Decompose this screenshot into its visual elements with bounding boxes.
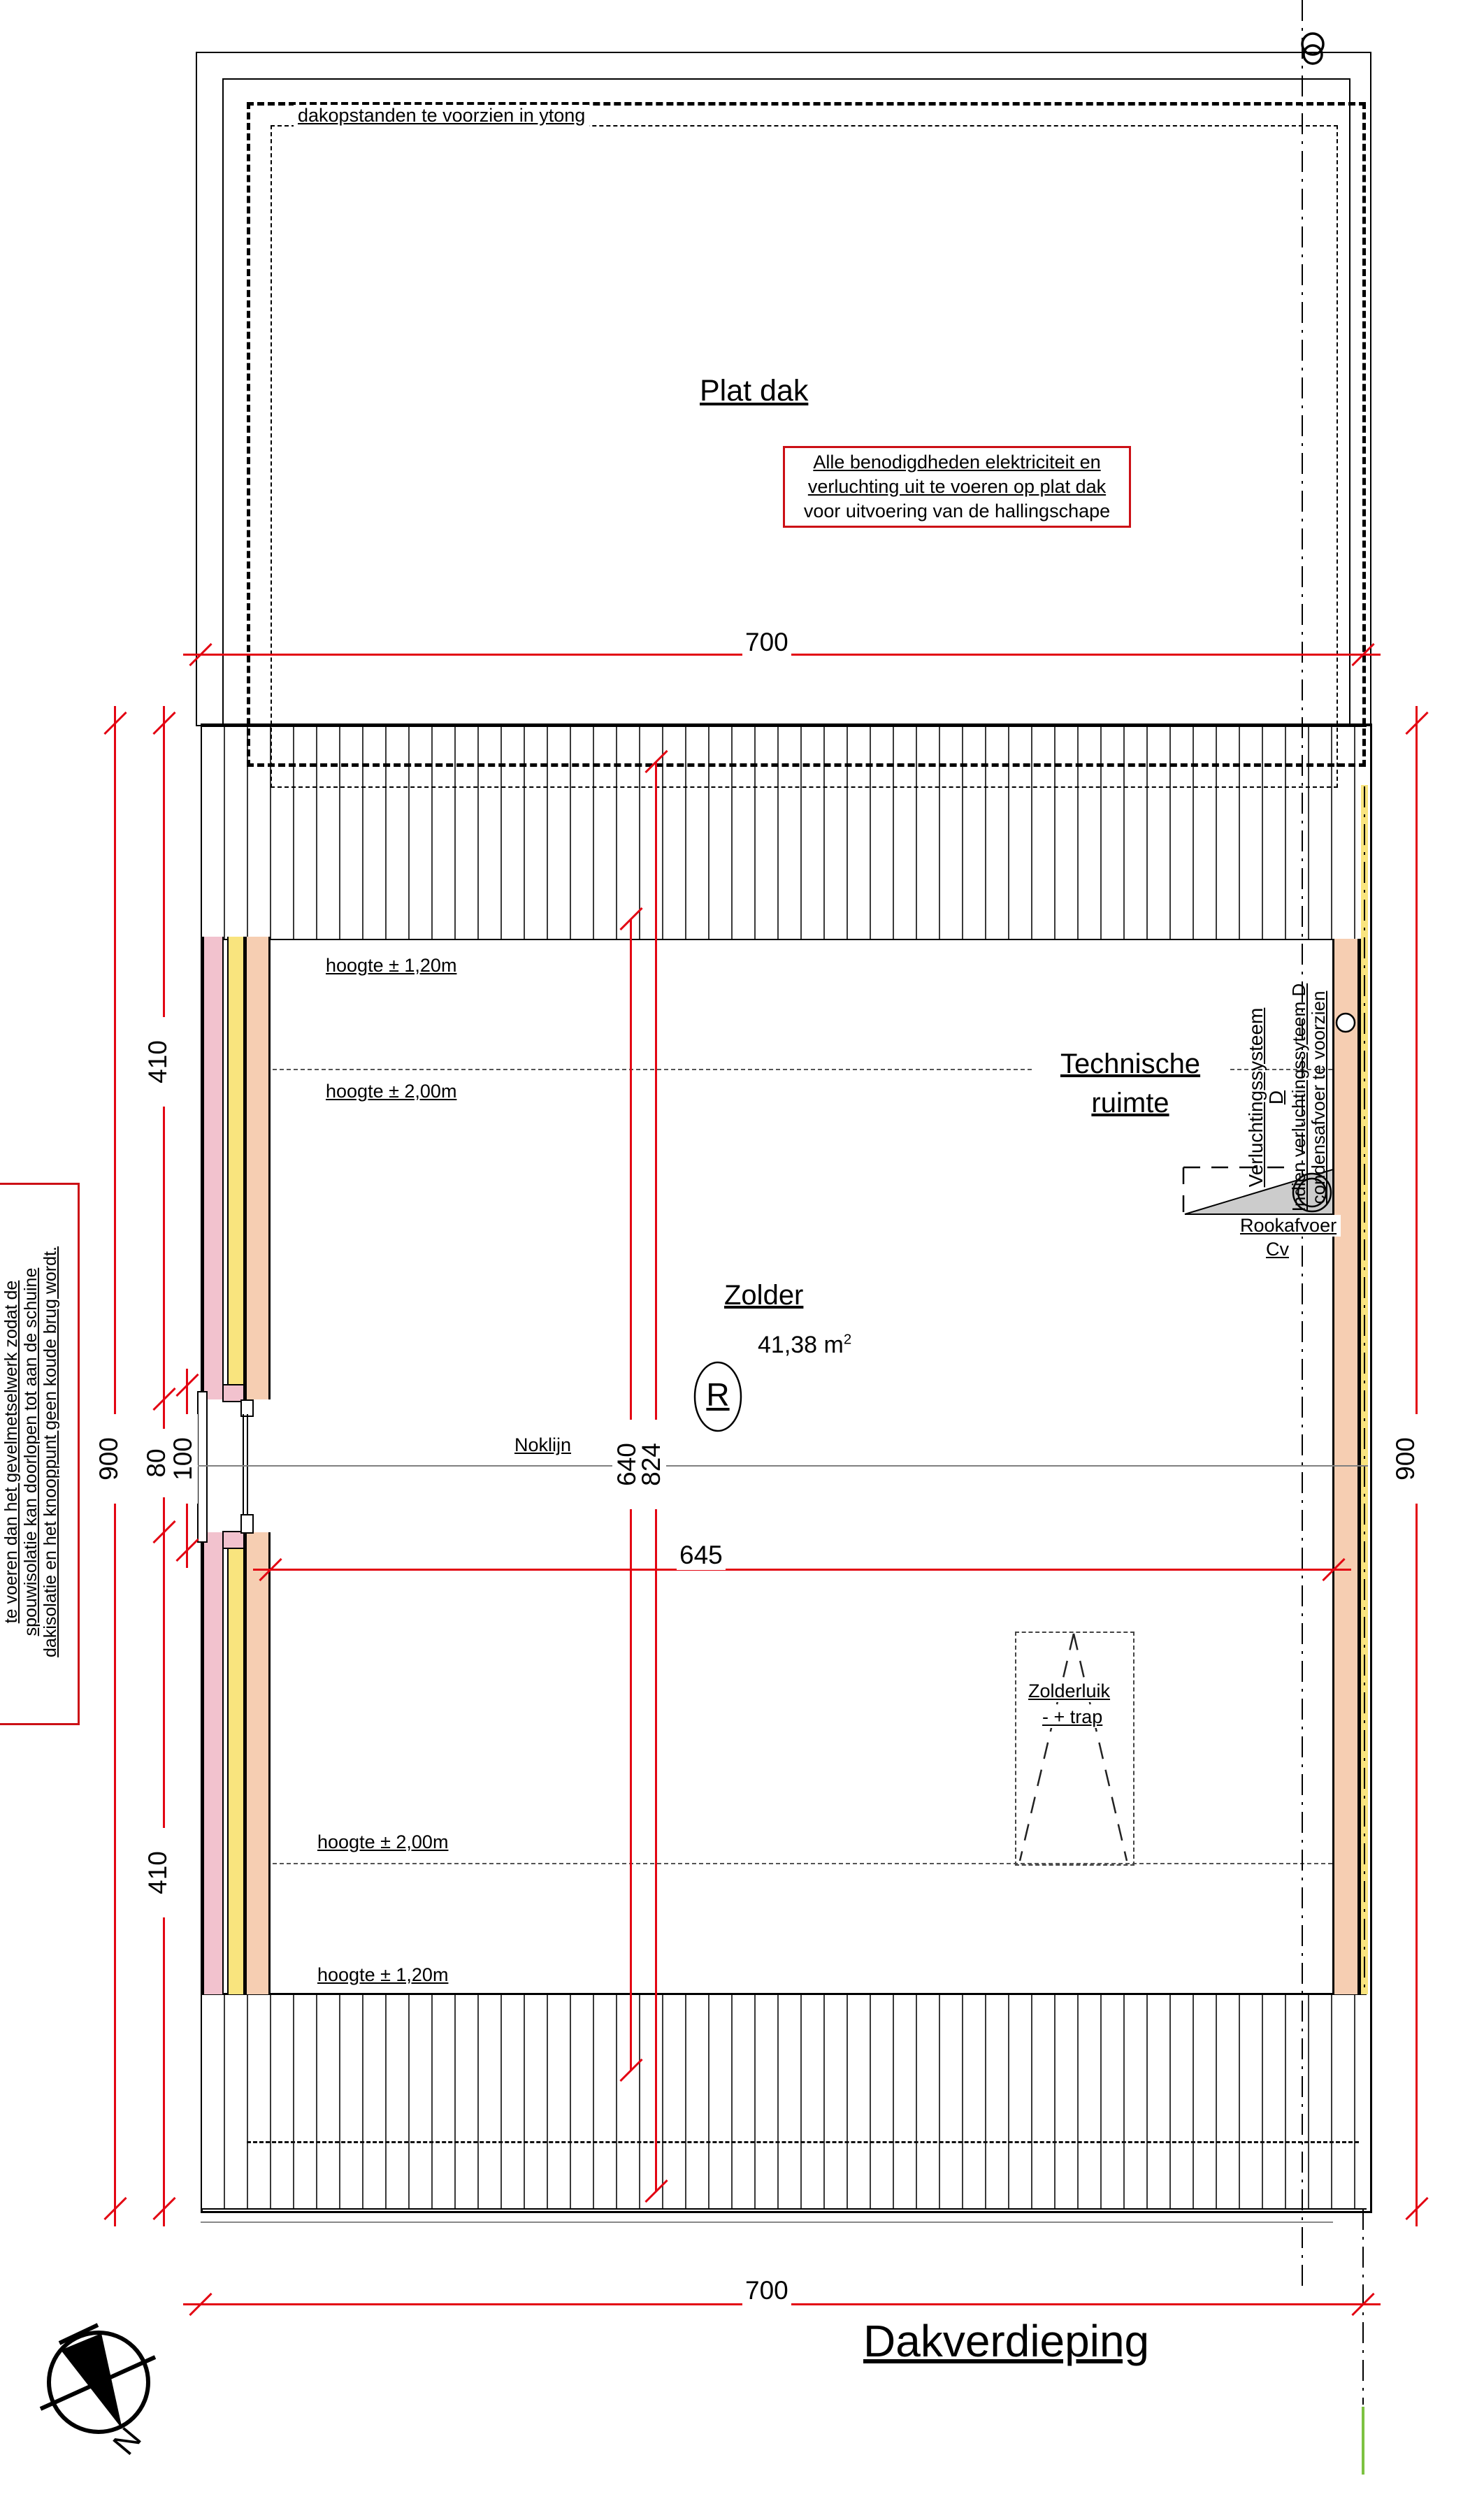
left-wall-inner-layer <box>247 937 268 1399</box>
height-120-label-top: hoogte ± 1,20m <box>322 955 461 977</box>
dim-left-100: 100 <box>168 1414 198 1504</box>
green-boundary-line <box>1362 2407 1364 2475</box>
warning-line3: voor uitvoering van de hallingschape <box>785 499 1129 524</box>
cv-label: Cv <box>1262 1239 1293 1260</box>
technische-ruimte-label: Technische ruimte <box>1033 1044 1227 1123</box>
side-note-line2: spouwisolatie kan doorlopen tot aan de s… <box>21 1176 41 1728</box>
zolder-label: Zolder <box>720 1279 807 1311</box>
dim-left-900: 900 <box>94 1414 124 1504</box>
left-wall-insulation-layer <box>229 937 243 1399</box>
side-note-line1: te voeren dan het gevelmetselwerk zodat … <box>1 1176 21 1728</box>
dim-line-645 <box>253 1569 1351 1571</box>
dim-bottom-700: 700 <box>742 2276 791 2305</box>
verluchting-line2: D <box>1266 972 1286 1223</box>
height-120-label-bottom: hoogte ± 1,20m <box>313 1964 452 1986</box>
left-wall-pink-layer <box>204 937 222 1399</box>
dim-left-410-top: 410 <box>143 1017 173 1107</box>
window-frame-bottom <box>240 1514 254 1534</box>
indien-line2: condensafvoer te voorzien <box>1309 965 1328 1230</box>
r-symbol-label: R <box>701 1376 735 1413</box>
boundary-line-bottom-right <box>1362 2209 1364 2405</box>
dim-left-410-bottom: 410 <box>143 1828 173 1917</box>
window-glass-line <box>243 1414 244 1514</box>
zolderluik-box <box>1015 1632 1134 1866</box>
terrain-line-bottom <box>201 2221 1333 2223</box>
floor-plan-canvas: te voeren dan het gevelmetselwerk zodat … <box>0 0 1484 2506</box>
page-title: Dakverdieping <box>863 2315 1149 2367</box>
condensafvoer-note: Indien verluchtingssyteem D condensafvoe… <box>1289 965 1328 1230</box>
electricity-warning-box: Alle benodigdheden elektriciteit en verl… <box>783 446 1131 528</box>
compass-north-label: N <box>106 2421 148 2462</box>
side-note-line3: dakisolatie en het knooppunt geen koude … <box>41 1176 60 1728</box>
dim-right-900: 900 <box>1391 1414 1420 1504</box>
building-outline <box>201 723 1372 2213</box>
dim-left-80: 80 <box>142 1429 171 1497</box>
ridge-line <box>198 1465 1368 1467</box>
zolderluik-trap-label: - + trap <box>1038 1706 1107 1728</box>
zolderluik-label: Zolderluik <box>1024 1680 1114 1702</box>
dim-top-700: 700 <box>742 628 791 657</box>
side-note-text: te voeren dan het gevelmetselwerk zodat … <box>1 1176 60 1728</box>
zolder-area-sup: 2 <box>844 1332 851 1348</box>
noklijn-label: Noklijn <box>510 1434 575 1456</box>
warning-line1: Alle benodigdheden elektriciteit en <box>785 450 1129 475</box>
dim-824: 824 <box>637 1420 666 1509</box>
verluchting-note: Verluchtingssysteem D <box>1246 972 1286 1223</box>
zolder-area-value: 41,38 m <box>758 1332 844 1358</box>
height-200-line-bottom <box>273 1863 1332 1864</box>
roof-hatch-bottom-dashed-line <box>247 2141 1359 2143</box>
indien-line1: Indien verluchtingssyteem D <box>1289 965 1309 1230</box>
zolder-area: 41,38 m2 <box>755 1332 854 1359</box>
right-wall-inner-layer <box>1334 939 1357 1994</box>
window-exterior-sill <box>197 1391 208 1543</box>
plat-dak-title: Plat dak <box>696 374 812 408</box>
technische-line1: Technische <box>1033 1044 1227 1083</box>
roof-hatch-bottom <box>202 1993 1367 2210</box>
ytong-note-label: dakopstanden te voorzien in ytong <box>294 105 589 127</box>
rookafvoer-label: Rookafvoer <box>1236 1215 1341 1237</box>
height-200-label-top: hoogte ± 2,00m <box>322 1081 461 1102</box>
warning-line2: verluchting uit te voeren op plat dak <box>785 475 1129 499</box>
north-compass: N <box>41 2325 155 2461</box>
verluchting-line1: Verluchtingssysteem <box>1246 972 1266 1223</box>
dim-645: 645 <box>677 1541 726 1570</box>
height-200-label-bottom: hoogte ± 2,00m <box>313 1831 452 1853</box>
technische-line2: ruimte <box>1033 1083 1227 1123</box>
right-wall-centerline <box>1364 786 1365 1993</box>
